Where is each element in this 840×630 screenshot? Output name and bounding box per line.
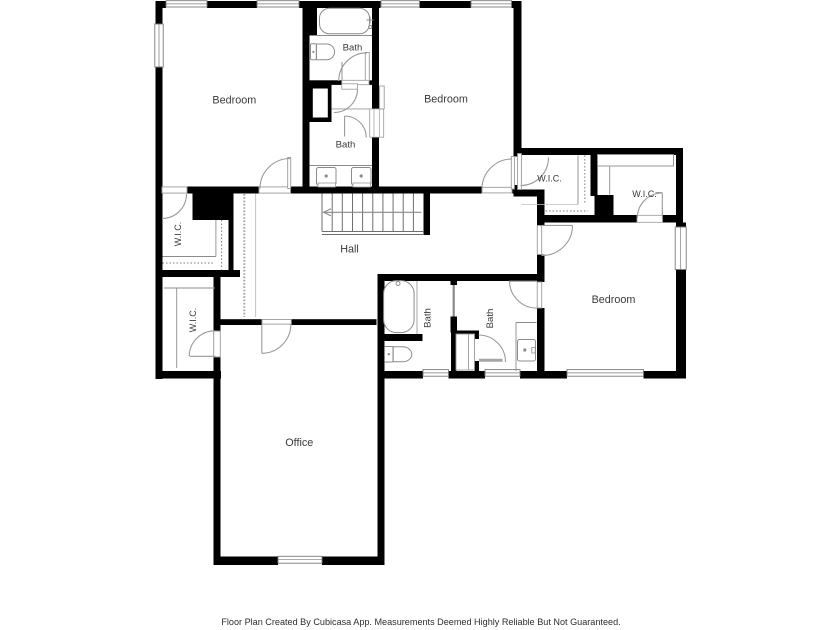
svg-text:Bath: Bath <box>336 139 356 150</box>
svg-text:Bedroom: Bedroom <box>424 94 468 106</box>
svg-text:Bedroom: Bedroom <box>592 294 636 306</box>
svg-text:Office: Office <box>285 437 313 449</box>
svg-text:Bath: Bath <box>343 43 363 54</box>
svg-text:Bath: Bath <box>485 309 496 329</box>
svg-text:Bedroom: Bedroom <box>212 95 256 107</box>
svg-text:Floor Plan Created By Cubicasa: Floor Plan Created By Cubicasa App. Meas… <box>221 617 620 627</box>
svg-text:W.I.C.: W.I.C. <box>188 308 198 333</box>
svg-text:W.I.C.: W.I.C. <box>173 222 183 247</box>
svg-text:Bath: Bath <box>423 308 434 328</box>
svg-text:Hall: Hall <box>340 244 359 256</box>
svg-text:W.I.C.: W.I.C. <box>632 189 657 199</box>
svg-text:W.I.C.: W.I.C. <box>537 174 562 184</box>
